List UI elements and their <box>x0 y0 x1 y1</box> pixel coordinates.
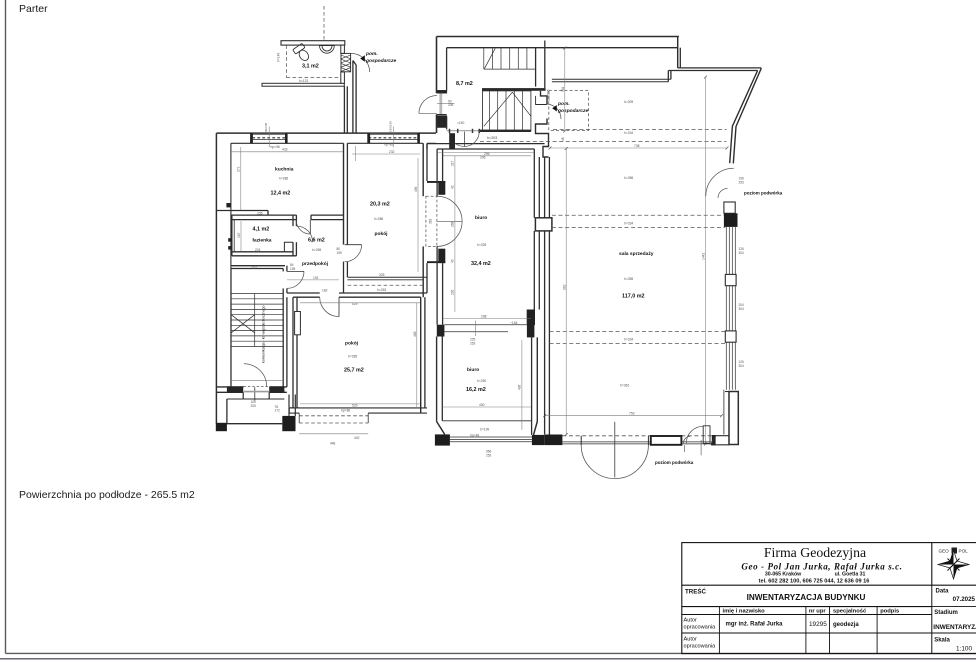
svg-text:h=250: h=250 <box>477 379 486 383</box>
svg-text:opracowania: opracowania <box>684 625 717 631</box>
svg-text:182: 182 <box>322 289 328 293</box>
svg-text:226: 226 <box>450 289 454 295</box>
svg-text:h=328: h=328 <box>477 243 486 247</box>
svg-text:3,1 m2: 3,1 m2 <box>302 64 319 70</box>
svg-text:253: 253 <box>486 453 492 457</box>
svg-text:Skala: Skala <box>934 637 950 643</box>
svg-text:224: 224 <box>255 248 261 252</box>
svg-text:436: 436 <box>518 384 522 390</box>
svg-text:Autor: Autor <box>684 617 698 623</box>
svg-text:296: 296 <box>480 155 486 159</box>
svg-text:117,0 m2: 117,0 m2 <box>622 294 644 300</box>
svg-text:48: 48 <box>561 137 565 141</box>
svg-text:h=309: h=309 <box>624 100 633 104</box>
svg-text:42: 42 <box>450 185 454 189</box>
svg-text:kuchnia: kuchnia <box>275 167 294 173</box>
svg-text:172: 172 <box>275 409 281 413</box>
svg-text:298: 298 <box>481 315 487 319</box>
svg-text:448: 448 <box>330 442 336 446</box>
svg-text:h=140: h=140 <box>277 53 281 62</box>
svg-text:253: 253 <box>470 341 476 345</box>
svg-text:325: 325 <box>379 273 385 277</box>
svg-text:h=334: h=334 <box>624 337 633 341</box>
svg-text:20,3 m2: 20,3 m2 <box>370 202 390 208</box>
svg-text:sala sprzedaży: sala sprzedaży <box>619 251 654 257</box>
svg-text:232: 232 <box>389 150 395 154</box>
svg-text:400: 400 <box>479 403 485 407</box>
svg-text:235: 235 <box>257 211 263 215</box>
svg-text:hp=86: hp=86 <box>341 409 350 413</box>
svg-text:opracowania: opracowania <box>684 644 717 650</box>
svg-text:h=263: h=263 <box>377 288 386 292</box>
svg-text:6,6 m2: 6,6 m2 <box>308 238 325 244</box>
svg-text:pom.: pom. <box>365 52 378 57</box>
svg-text:h=334: h=334 <box>624 221 633 225</box>
svg-text:8,7 m2: 8,7 m2 <box>456 81 473 87</box>
svg-text:43: 43 <box>450 259 454 263</box>
svg-text:GEO: GEO <box>939 549 950 554</box>
svg-text:podpis: podpis <box>880 609 899 615</box>
svg-text:753: 753 <box>629 411 635 415</box>
svg-text:488: 488 <box>413 331 417 337</box>
svg-text:h=356: h=356 <box>624 176 633 180</box>
svg-text:32,4 m2: 32,4 m2 <box>471 261 491 267</box>
svg-text:Data: Data <box>936 589 950 595</box>
svg-text:TREŚĆ: TREŚĆ <box>685 588 707 596</box>
svg-text:h=285: h=285 <box>348 354 357 358</box>
svg-text:217: 217 <box>450 160 454 166</box>
svg-text:1442: 1442 <box>701 252 705 260</box>
svg-text:Stadium: Stadium <box>934 610 958 616</box>
svg-text:specjalność: specjalność <box>833 609 867 615</box>
svg-text:192: 192 <box>313 276 319 280</box>
svg-text:90/168: 90/168 <box>264 122 268 132</box>
svg-text:h=203: h=203 <box>487 136 497 140</box>
svg-text:304: 304 <box>739 251 745 255</box>
svg-text:poziom podwórka: poziom podwórka <box>655 460 694 465</box>
svg-text:253: 253 <box>739 180 745 184</box>
svg-text:304: 304 <box>739 307 745 311</box>
svg-text:tel. 602 282 100, 606 725 044,: tel. 602 282 100, 606 725 044, 12 636 09… <box>759 578 870 584</box>
svg-text:Firma Geodezyjna: Firma Geodezyjna <box>764 545 866 560</box>
svg-text:h=199: h=199 <box>480 427 489 431</box>
svg-text:≈150: ≈150 <box>457 121 464 125</box>
svg-text:gospodarcze: gospodarcze <box>365 58 396 64</box>
svg-text:271: 271 <box>237 166 241 172</box>
svg-text:łazienka: łazienka <box>253 237 272 243</box>
svg-text:geodezja: geodezja <box>833 622 859 628</box>
svg-text:hp=96: hp=96 <box>271 145 280 149</box>
svg-text:1:100: 1:100 <box>956 646 972 653</box>
svg-text:456: 456 <box>414 186 418 192</box>
svg-text:Autor: Autor <box>684 636 698 642</box>
svg-text:biuro: biuro <box>467 367 479 373</box>
svg-text:195: 195 <box>290 267 296 271</box>
svg-text:mgr inż. Rafał Jurka: mgr inż. Rafał Jurka <box>726 621 784 627</box>
svg-text:pokój: pokój <box>375 231 389 237</box>
svg-text:195: 195 <box>337 251 343 255</box>
svg-text:nr upr: nr upr <box>809 609 826 615</box>
svg-text:hp=85: hp=85 <box>384 143 393 147</box>
svg-text:318: 318 <box>429 218 433 224</box>
svg-text:h=362: h=362 <box>620 383 629 387</box>
svg-text:402: 402 <box>354 436 360 440</box>
svg-text:INWENTARYZA: INWENTARYZA <box>933 624 976 631</box>
svg-text:gospodarcze: gospodarcze <box>557 108 588 114</box>
svg-text:738: 738 <box>634 144 640 148</box>
svg-text:433: 433 <box>282 148 288 152</box>
svg-text:~154: ~154 <box>510 321 518 325</box>
svg-text:h=355: h=355 <box>624 277 633 281</box>
svg-text:h=288: h=288 <box>374 217 383 221</box>
svg-text:pom.: pom. <box>557 102 570 107</box>
svg-text:Parter: Parter <box>19 3 48 15</box>
svg-text:POL: POL <box>959 549 969 554</box>
svg-text:268: 268 <box>450 221 454 227</box>
svg-text:Powierzchnia po podłodze - 265: Powierzchnia po podłodze - 265.5 m2 <box>19 489 195 501</box>
svg-text:Geo - Pol Jan Jurka, Rafał Jur: Geo - Pol Jan Jurka, Rafał Jurka s.c. <box>741 561 902 571</box>
svg-text:h=286: h=286 <box>279 177 288 181</box>
svg-text:hp=49: hp=49 <box>470 434 479 438</box>
svg-text:12,4 m2: 12,4 m2 <box>271 191 291 197</box>
svg-text:ul. Goetla 31: ul. Goetla 31 <box>835 571 866 577</box>
svg-text:25,7 m2: 25,7 m2 <box>344 367 364 373</box>
svg-text:pokój: pokój <box>345 341 359 347</box>
svg-text:komunikacja - kl. wejścia bocz: komunikacja - kl. wejścia bocznego <box>262 305 266 363</box>
svg-text:205: 205 <box>251 404 257 408</box>
svg-text:07.2025: 07.2025 <box>953 596 976 603</box>
svg-text:4,1 m2: 4,1 m2 <box>253 227 270 233</box>
svg-text:962: 962 <box>562 284 566 290</box>
svg-text:30-065 Kraków: 30-065 Kraków <box>765 571 802 577</box>
svg-text:167: 167 <box>237 232 241 238</box>
svg-text:poziom podwórka: poziom podwórka <box>744 190 783 195</box>
svg-text:205: 205 <box>448 103 454 107</box>
svg-text:150/168: 150/168 <box>389 121 393 132</box>
svg-text:h=334: h=334 <box>624 131 633 135</box>
svg-text:biuro: biuro <box>475 215 487 221</box>
svg-text:h=131: h=131 <box>299 79 308 83</box>
svg-text:INWENTARYZACJA BUDYNKU: INWENTARYZACJA BUDYNKU <box>747 593 866 602</box>
svg-text:h=265: h=265 <box>312 248 321 252</box>
svg-text:219: 219 <box>251 265 257 269</box>
svg-text:364: 364 <box>561 86 565 92</box>
svg-text:19295: 19295 <box>809 621 827 628</box>
svg-text:304: 304 <box>739 364 745 368</box>
svg-text:przedpokój: przedpokój <box>302 261 329 267</box>
svg-text:16,2 m2: 16,2 m2 <box>466 387 486 393</box>
svg-text:imię i nazwisko: imię i nazwisko <box>723 609 766 615</box>
